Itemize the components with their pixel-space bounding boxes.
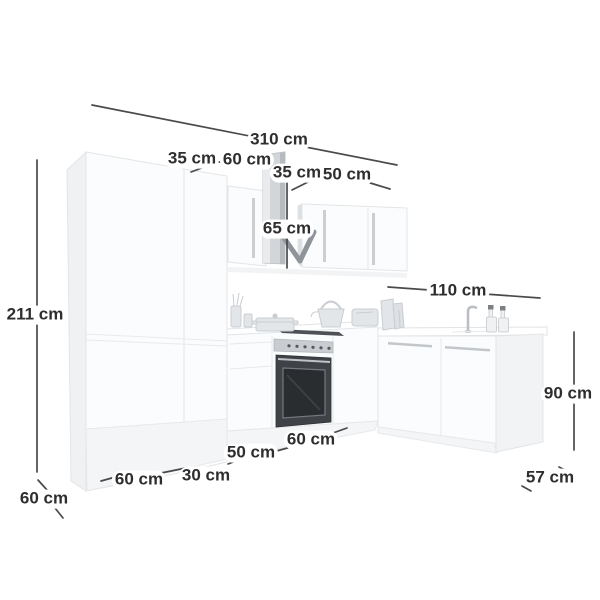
dim-label-tall-divider-35: 35 cm xyxy=(165,150,219,169)
right-leg-front xyxy=(378,336,496,444)
dim-label-wall-cabinet-35: 35 cm xyxy=(270,164,324,183)
hood-chimney-highlight xyxy=(263,154,270,263)
dim-label-total-width: 310 cm xyxy=(247,131,311,150)
utensil-crock xyxy=(231,293,252,327)
right-leg-side-panel xyxy=(496,334,543,452)
tall-cabinet-group xyxy=(67,152,227,491)
wall-cabinet-35-50-front xyxy=(302,204,407,271)
wall-cabinet-group xyxy=(228,186,407,278)
dim-label-left-depth-60: 60 cm xyxy=(17,490,71,509)
kettle xyxy=(311,302,344,328)
cooking-pot xyxy=(252,314,298,331)
cutting-boards xyxy=(381,299,404,330)
dim-label-wall-cabinet-50: 50 cm xyxy=(320,166,374,185)
kitchen-illustration xyxy=(0,0,600,600)
toaster xyxy=(352,309,378,326)
dim-label-total-height-211: 211 cm xyxy=(4,306,67,325)
dim-label-worktop-height-90: 90 cm xyxy=(541,385,595,404)
dim-label-tall-cabinet-30: 30 cm xyxy=(179,467,233,486)
right-leg-group xyxy=(378,334,543,453)
dim-label-right-run-110: 110 cm xyxy=(427,282,490,301)
dim-label-base-cabinet-60: 60 cm xyxy=(284,431,338,450)
dim-label-right-depth-57: 57 cm xyxy=(523,469,577,488)
dim-label-wall-cabinet-60: 60 cm xyxy=(220,151,274,170)
kitchen-dimension-diagram: 310 cm35 cm60 cm35 cm50 cm65 cm110 cm211… xyxy=(0,0,600,600)
tick-depth-60-b xyxy=(55,508,63,518)
wall-cabinet-50-handle xyxy=(372,213,375,265)
dim-label-tall-cabinet-60: 60 cm xyxy=(112,471,166,490)
wall-cabinet-35-handle xyxy=(323,210,326,262)
dim-label-base-cabinet-50: 50 cm xyxy=(224,444,278,463)
tall-cabinet-side-panel xyxy=(67,152,86,491)
dim-label-hood-height-65: 65 cm xyxy=(260,220,314,239)
wall-cabinet-60-handle xyxy=(252,198,255,258)
